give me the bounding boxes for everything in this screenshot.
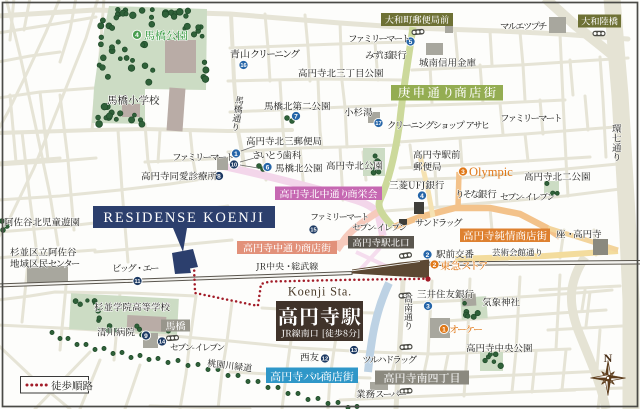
svg-text:Olympic: Olympic bbox=[469, 165, 513, 179]
svg-text:Koenji Sta.: Koenji Sta. bbox=[288, 285, 352, 299]
svg-text:13: 13 bbox=[351, 348, 357, 354]
svg-text:6: 6 bbox=[266, 164, 270, 171]
svg-text:N: N bbox=[604, 351, 613, 365]
svg-text:14: 14 bbox=[159, 340, 166, 346]
svg-text:RESIDENSE KOENJI: RESIDENSE KOENJI bbox=[103, 210, 264, 226]
svg-text:12: 12 bbox=[322, 357, 328, 363]
svg-text:2: 2 bbox=[433, 262, 437, 269]
svg-text:15: 15 bbox=[310, 228, 316, 234]
svg-text:4: 4 bbox=[135, 32, 139, 39]
svg-text:7: 7 bbox=[294, 113, 298, 120]
svg-text:10: 10 bbox=[231, 163, 237, 169]
svg-text:1: 1 bbox=[234, 151, 238, 158]
svg-text:9: 9 bbox=[144, 333, 148, 340]
svg-text:3: 3 bbox=[426, 303, 430, 310]
svg-text:17: 17 bbox=[375, 121, 381, 127]
svg-text:1: 1 bbox=[442, 326, 446, 333]
svg-text:11: 11 bbox=[135, 279, 141, 285]
svg-text:2: 2 bbox=[426, 252, 430, 259]
svg-text:8: 8 bbox=[217, 173, 221, 180]
svg-text:4: 4 bbox=[420, 193, 424, 200]
svg-text:16: 16 bbox=[240, 63, 246, 69]
svg-text:3: 3 bbox=[461, 169, 465, 176]
svg-text:5: 5 bbox=[409, 39, 413, 46]
